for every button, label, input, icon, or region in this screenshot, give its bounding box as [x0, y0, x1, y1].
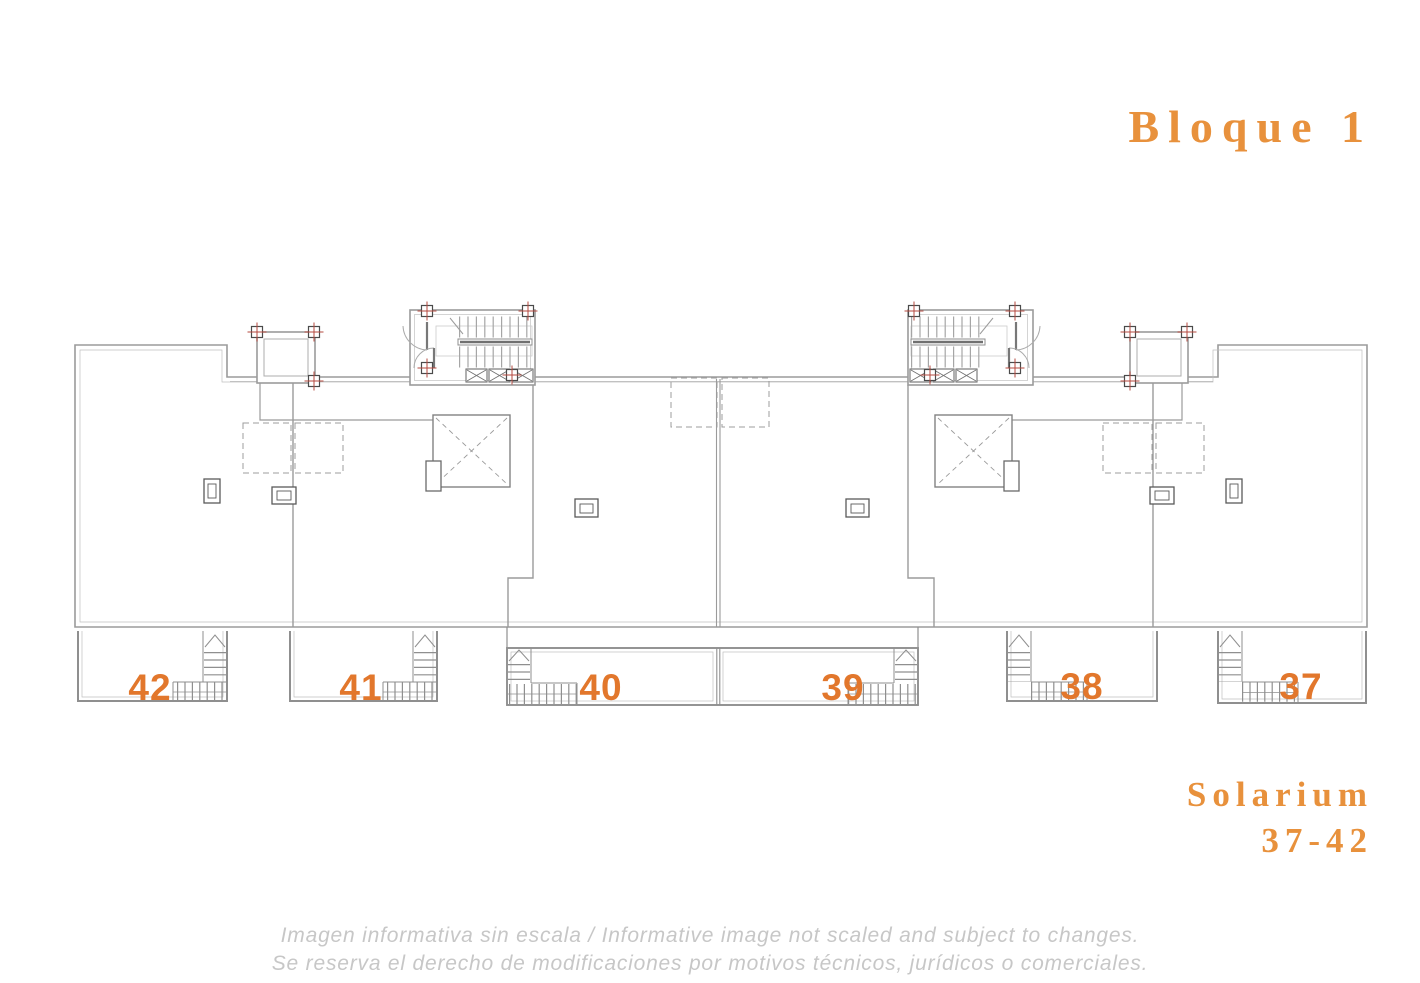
pergola	[1156, 423, 1204, 473]
pergola	[1103, 423, 1152, 473]
elevator-shaft-left	[426, 415, 510, 491]
elevator-shaft-right	[935, 415, 1019, 491]
terrace-divider	[717, 648, 720, 705]
outer-boundary-hairline	[80, 350, 1362, 622]
structure-box	[257, 332, 315, 383]
pergola	[722, 378, 769, 427]
pergola	[671, 378, 717, 427]
unit-number-42: 42	[128, 667, 171, 708]
roof-strip-left	[260, 379, 433, 420]
unit-number-40: 40	[579, 667, 622, 708]
unit-number-39: 39	[821, 667, 864, 708]
unit-number-37: 37	[1279, 666, 1322, 707]
disclaimer-line-1: Imagen informativa sin escala / Informat…	[0, 922, 1420, 950]
unit-number-41: 41	[339, 667, 382, 708]
disclaimer: Imagen informativa sin escala / Informat…	[0, 922, 1420, 978]
shaft-door	[1004, 461, 1019, 491]
roof-drains	[204, 479, 1242, 517]
roof-strip-right	[1012, 379, 1182, 420]
drain	[575, 499, 598, 517]
drain	[272, 487, 296, 504]
roof-structure-right	[1121, 323, 1197, 391]
vent-boxes	[466, 369, 533, 382]
stair-arrow	[205, 635, 225, 647]
pergola	[295, 423, 343, 473]
building-outline	[75, 345, 1367, 627]
stair-arrow	[415, 635, 435, 647]
stair-arrow	[1220, 635, 1240, 647]
terraces	[78, 627, 1366, 705]
unit-divider-walls	[293, 379, 1153, 627]
pergola	[243, 423, 291, 473]
structure-box	[1130, 332, 1188, 383]
drain	[846, 499, 869, 517]
drain	[1226, 479, 1242, 503]
pergola-dashed-outlines	[243, 378, 1204, 473]
stair-arrow	[1009, 635, 1029, 647]
divider-39-38	[908, 385, 934, 627]
floor-plan-drawing: 42 41 40 39 38 37	[0, 0, 1420, 983]
divider-41-40	[508, 379, 533, 627]
disclaimer-line-2: Se reserva el derecho de modificaciones …	[0, 950, 1420, 978]
unit-number-38: 38	[1060, 666, 1103, 707]
shaft-door	[426, 461, 441, 491]
stair-core-left	[403, 302, 538, 386]
roof-structure-left	[248, 323, 324, 391]
stair-core-right	[905, 302, 1041, 386]
drain	[204, 479, 220, 503]
drain	[1150, 487, 1174, 504]
outer-boundary	[75, 345, 1367, 627]
vent-boxes	[910, 369, 977, 382]
